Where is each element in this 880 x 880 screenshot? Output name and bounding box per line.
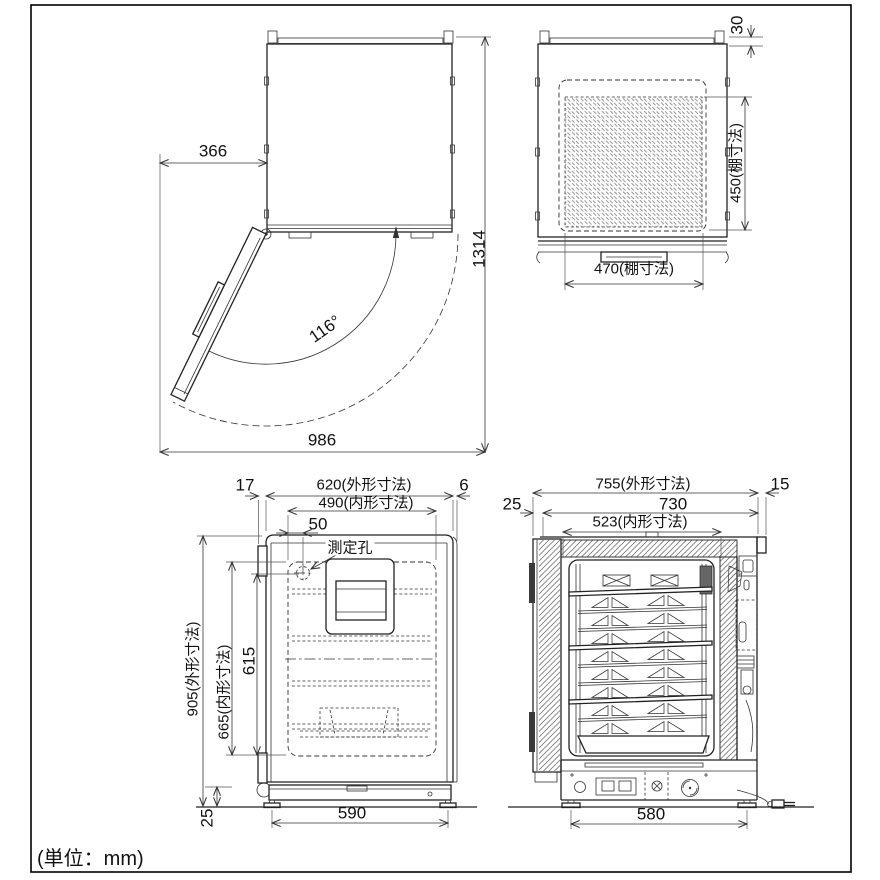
dim-total-depth: 1314 bbox=[471, 230, 488, 268]
view-side-section bbox=[508, 493, 814, 829]
back-top-bracket bbox=[757, 537, 766, 553]
dim-side-door-thickness: 25 bbox=[503, 496, 522, 513]
dim-shelf-depth: 450(棚寸法) bbox=[729, 123, 744, 203]
dim-front-inner-height: 665(内形寸法) bbox=[217, 644, 232, 739]
dim-side-outer-depth: 755(外形寸法) bbox=[595, 477, 690, 492]
dim-shelf-width: 470(棚寸法) bbox=[594, 262, 674, 277]
dim-side-back-clearance: 15 bbox=[771, 476, 790, 493]
dim-front-shelf-height: 615 bbox=[241, 647, 258, 675]
front-hinge-top bbox=[258, 546, 267, 576]
units-note: (単位：mm) bbox=[37, 842, 144, 871]
dim-side-inner-depth: 523(内形寸法) bbox=[592, 515, 687, 530]
shelf-stack bbox=[569, 587, 712, 734]
dim-door-clearance: 366 bbox=[199, 143, 227, 160]
dim-front-foot-height: 25 bbox=[199, 809, 216, 828]
shelf-mesh bbox=[565, 97, 702, 227]
open-door bbox=[165, 224, 266, 401]
dim-front-hole-offset: 50 bbox=[309, 516, 328, 533]
view-top-open-door bbox=[160, 31, 491, 452]
drain-tray bbox=[578, 736, 709, 753]
label-measurement-hole: 測定孔 bbox=[325, 541, 374, 556]
door-angle-arc bbox=[209, 234, 396, 364]
dim-front-hinge-offset: 17 bbox=[236, 477, 255, 494]
dim-swing-width: 986 bbox=[308, 432, 336, 449]
dim-side-body-depth: 730 bbox=[659, 496, 687, 513]
dim-front-trim-offset: 6 bbox=[459, 477, 468, 494]
base-unit bbox=[561, 760, 757, 800]
dim-front-outer-width: 620(外形寸法) bbox=[316, 478, 411, 493]
side-hinge-top bbox=[529, 563, 535, 603]
dim-front-foot-span: 590 bbox=[338, 805, 366, 822]
side-hinge-bottom bbox=[529, 712, 535, 752]
dim-side-foot-span: 580 bbox=[637, 806, 665, 823]
dimension-drawing-canvas: 366 116° 986 1314 30 450(棚寸法) 470(棚寸法) 1… bbox=[0, 0, 880, 880]
dim-back-clearance-top: 30 bbox=[729, 16, 746, 35]
dim-front-outer-height: 905(外形寸法) bbox=[186, 621, 201, 716]
technical-line-drawing bbox=[0, 0, 880, 880]
front-hinge-bottom bbox=[258, 753, 267, 783]
dim-front-inner-width: 490(内形寸法) bbox=[318, 496, 413, 511]
